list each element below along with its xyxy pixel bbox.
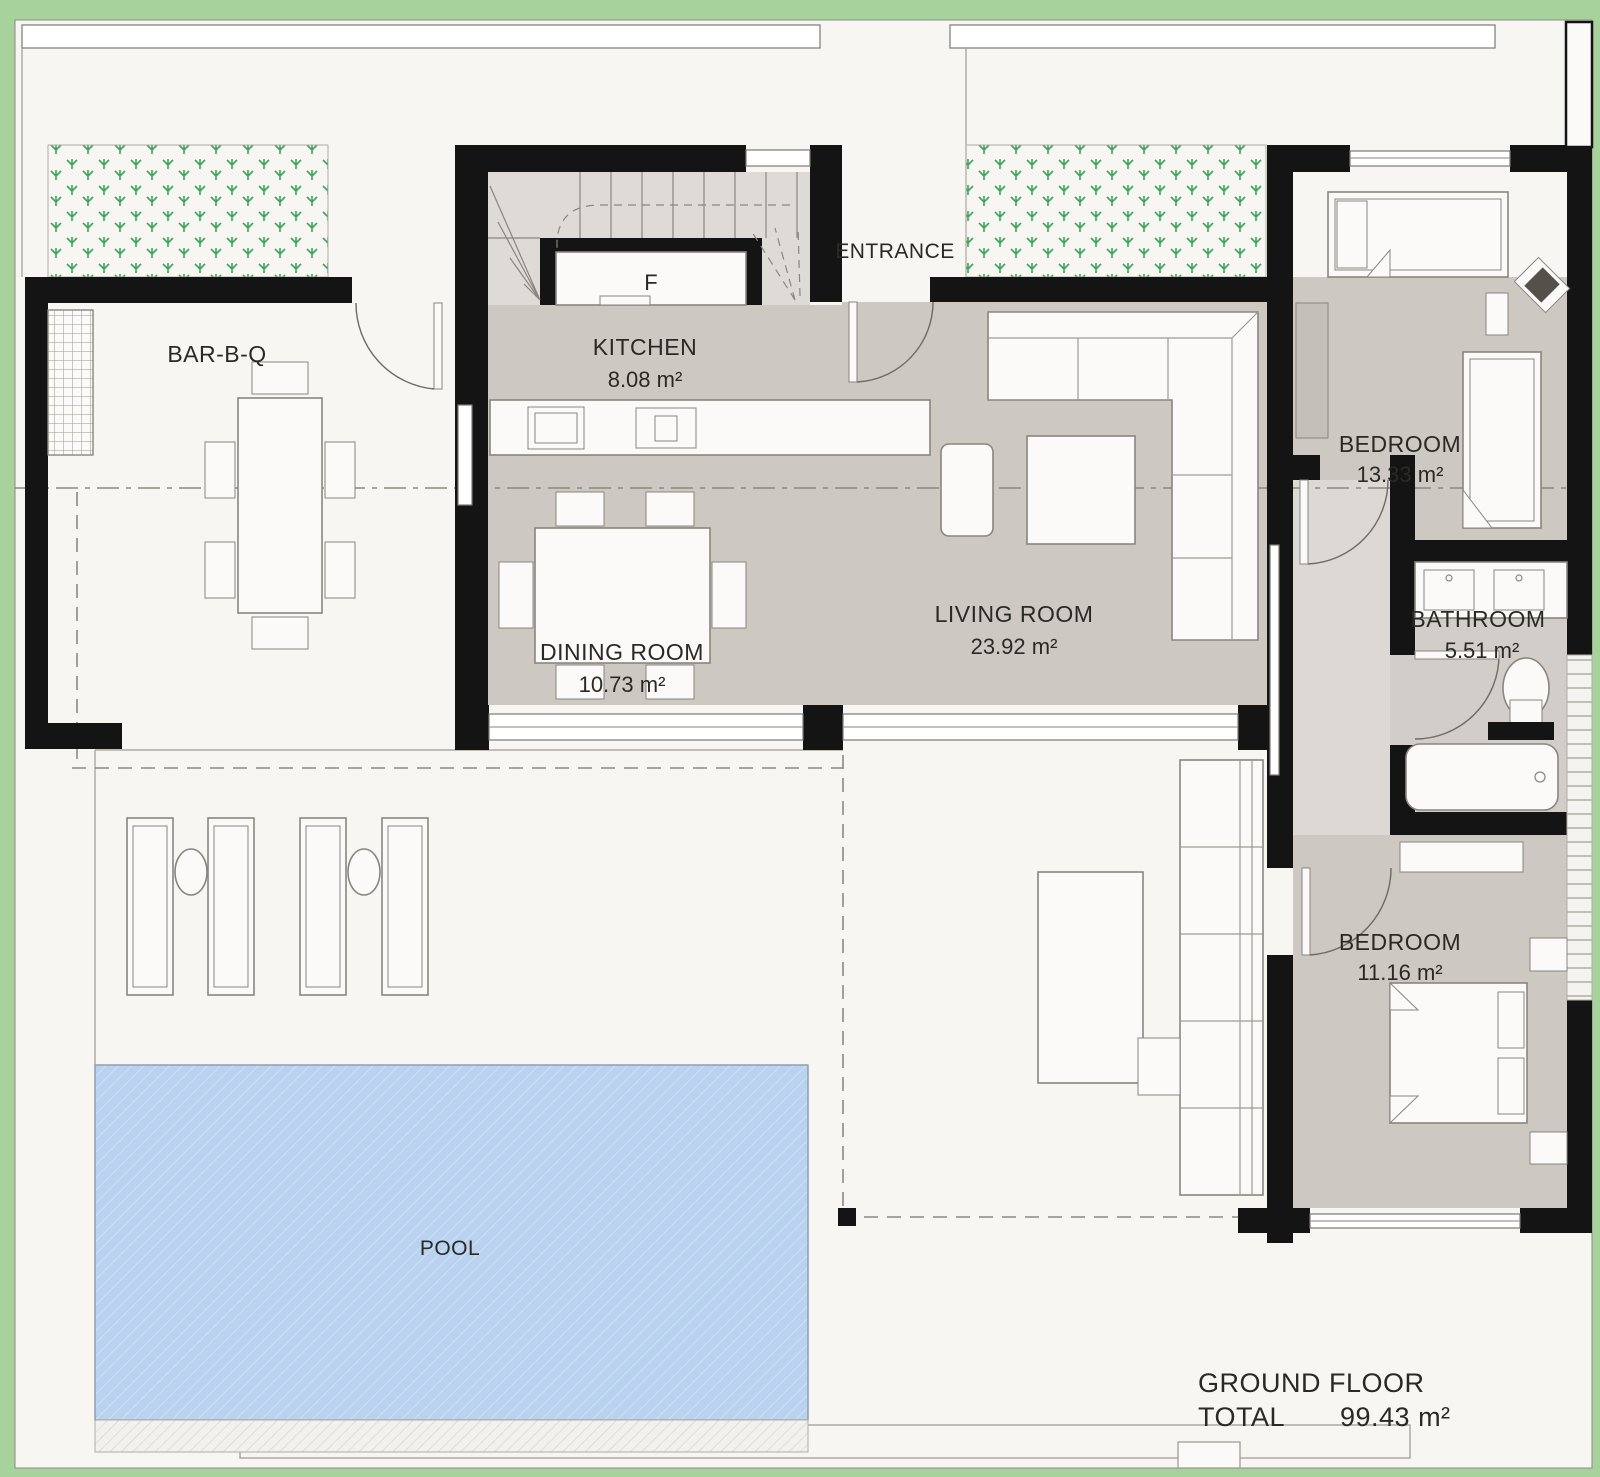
exterior-stair-strip — [1567, 655, 1592, 1000]
dining-chair — [499, 562, 533, 628]
sun-lounger — [127, 818, 173, 995]
bed-pillow — [1498, 1058, 1524, 1114]
bed-pillow — [1498, 992, 1524, 1048]
total-line1: GROUND FLOOR — [1198, 1368, 1425, 1398]
barbq-chair — [325, 442, 355, 498]
bedroom1-bed-b — [1463, 352, 1541, 528]
ottoman — [941, 444, 993, 536]
barbq-chair — [325, 542, 355, 598]
kitchen-label: KITCHEN — [593, 334, 697, 360]
sun-lounger — [208, 818, 254, 995]
bedroom2-label: BEDROOM — [1339, 929, 1461, 955]
barbq-label: BAR-B-Q — [167, 341, 266, 367]
bedroom1-area: 13.33 m² — [1357, 462, 1444, 487]
pool-label: POOL — [420, 1237, 480, 1260]
bedroom1-label: BEDROOM — [1339, 431, 1461, 457]
toilet-cistern — [1488, 722, 1554, 740]
bathroom-sink — [1424, 570, 1474, 610]
living-label: LIVING ROOM — [935, 601, 1094, 627]
sun-lounger — [382, 818, 428, 995]
stair-window — [746, 150, 810, 166]
living-hall-sliding-door — [1270, 545, 1279, 775]
barbecue-grill — [48, 310, 93, 455]
grass-patch-right — [966, 145, 1266, 277]
bed-pillow — [1337, 201, 1367, 268]
side-table — [348, 849, 380, 895]
pool-deck-edge — [95, 1420, 808, 1452]
dining-chair — [646, 492, 694, 526]
entrance-label: ENTRANCE — [835, 240, 955, 263]
sun-lounger — [300, 818, 346, 995]
bedroom2-nightstand — [1530, 938, 1567, 971]
dining-chair — [712, 562, 746, 628]
kitchen-furniture — [490, 400, 930, 455]
bedroom2-area: 11.16 m² — [1357, 960, 1442, 985]
barbq-table — [238, 398, 322, 613]
bedroom2-nightstand — [1530, 1132, 1567, 1164]
living-area: 23.92 m² — [971, 634, 1058, 659]
total-line2-label: TOTAL — [1198, 1402, 1285, 1432]
kitchen-window — [458, 405, 472, 505]
total-line2-value: 99.43 m² — [1340, 1402, 1451, 1432]
bathroom-label: BATHROOM — [1410, 606, 1545, 632]
dining-area: 10.73 m² — [579, 672, 666, 697]
side-table — [1138, 1038, 1180, 1095]
floor-plan-drawing: F — [0, 0, 1600, 1477]
kitchen-area: 8.08 m² — [608, 367, 683, 392]
fridge-label: F — [644, 270, 657, 295]
coffee-table — [1027, 436, 1135, 544]
bedroom1-nightstand — [1486, 293, 1508, 335]
bathroom-sink — [1494, 570, 1544, 610]
bedroom1-wardrobe — [1296, 303, 1328, 438]
side-table — [175, 849, 207, 895]
barbq-chair — [205, 442, 235, 498]
dining-chair — [556, 492, 604, 526]
dining-label: DINING ROOM — [540, 639, 704, 665]
bedroom2-dresser — [1400, 842, 1523, 872]
bathroom-area: 5.51 m² — [1445, 638, 1520, 663]
barbq-chair — [205, 542, 235, 598]
barbq-chair — [252, 617, 308, 649]
floor-plan-page: F — [0, 0, 1600, 1477]
grass-patch-left — [48, 145, 328, 277]
terrace-table — [1038, 872, 1143, 1083]
